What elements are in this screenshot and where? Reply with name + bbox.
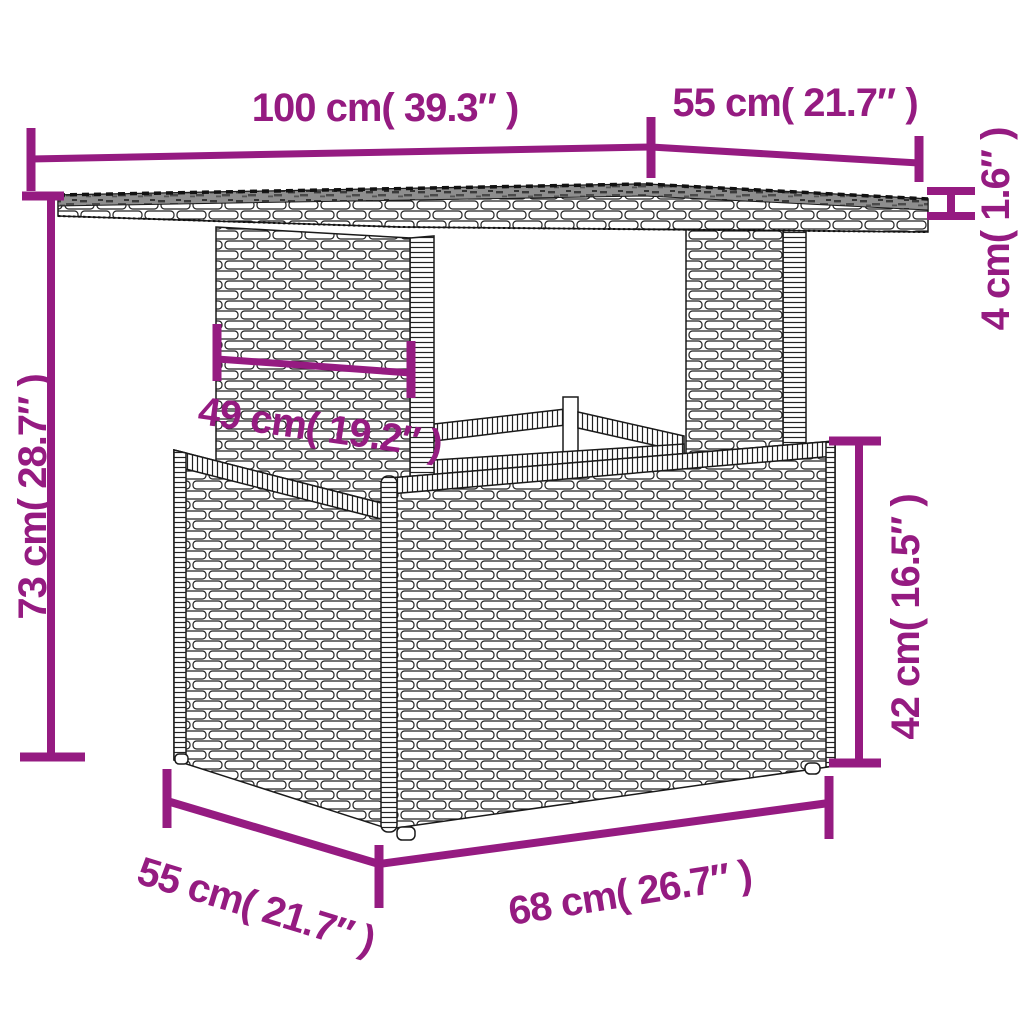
dimension-label-top-depth: 55 cm( 21.7″ ) (672, 83, 917, 123)
right-leg-side (783, 223, 806, 473)
dimension-label-top-width: 100 cm( 39.3″ ) (252, 88, 519, 128)
table-structure (58, 184, 928, 840)
dimension-label-overall-height: 73 cm( 28.7″ ) (13, 374, 53, 619)
right-leg (686, 223, 783, 477)
table-foot (397, 827, 415, 840)
table-foot (805, 763, 820, 774)
dimension-label-base-height: 42 cm( 16.5″ ) (886, 494, 926, 739)
dimension-diagram: 100 cm( 39.3″ ) 55 cm( 21.7″ ) 4 cm( 1.6… (0, 0, 1024, 1024)
tabletop (58, 184, 928, 232)
base-corner-post (381, 476, 397, 832)
table-foot (175, 754, 188, 764)
storage-base (174, 441, 835, 840)
base-right-face (389, 441, 835, 829)
dimension-label-top-thickness: 4 cm( 1.6″ ) (976, 128, 1016, 331)
